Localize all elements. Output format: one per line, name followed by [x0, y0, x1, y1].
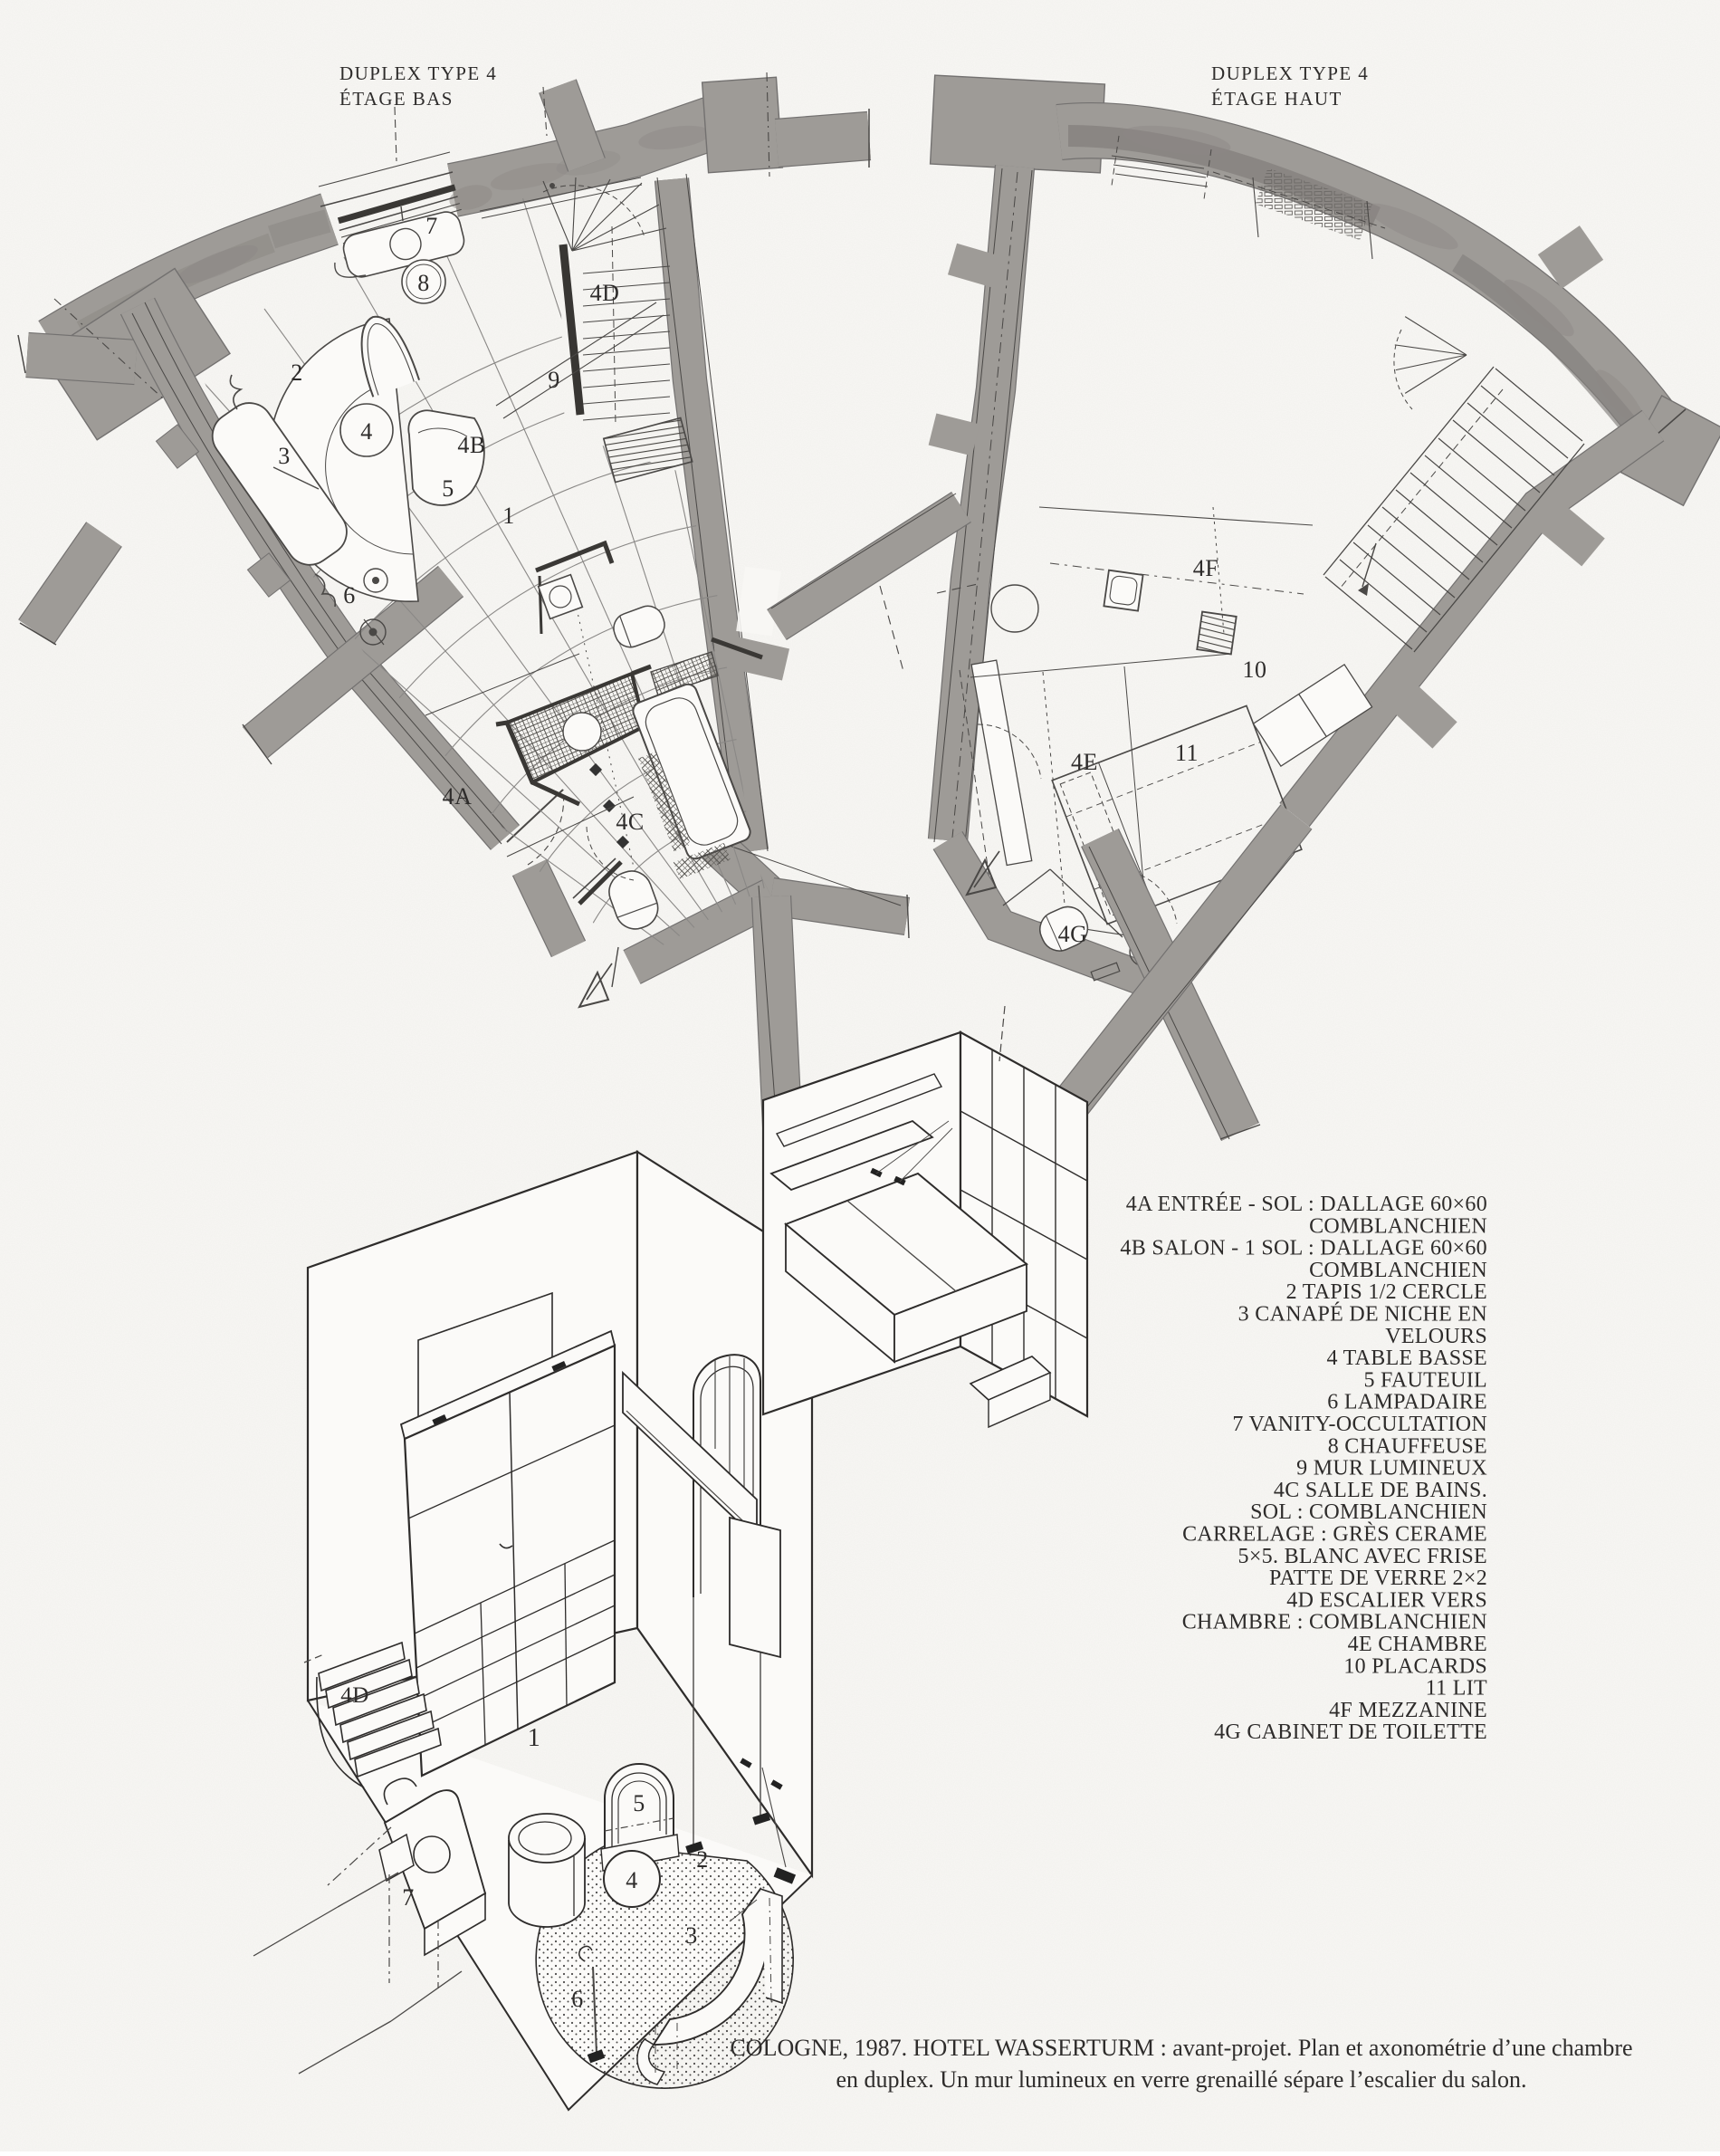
- svg-text:4D: 4D: [590, 280, 620, 306]
- svg-text:5: 5: [633, 1790, 645, 1816]
- svg-text:4: 4: [360, 418, 373, 445]
- svg-text:4F: 4F: [1193, 555, 1218, 581]
- svg-text:7: 7: [425, 213, 438, 239]
- svg-text:4 TABLE BASSE: 4 TABLE BASSE: [1326, 1346, 1487, 1370]
- svg-text:SOL : COMBLANCHIEN: SOL : COMBLANCHIEN: [1250, 1500, 1487, 1524]
- svg-text:2 TAPIS 1/2 CERCLE: 2 TAPIS 1/2 CERCLE: [1286, 1280, 1487, 1304]
- svg-text:DUPLEX TYPE 4: DUPLEX TYPE 4: [339, 62, 497, 84]
- svg-text:11: 11: [1175, 740, 1199, 766]
- svg-text:6 LAMPADAIRE: 6 LAMPADAIRE: [1327, 1391, 1487, 1414]
- svg-text:9: 9: [548, 367, 560, 393]
- svg-text:4F MEZZANINE: 4F MEZZANINE: [1329, 1699, 1487, 1722]
- svg-text:ÉTAGE HAUT: ÉTAGE HAUT: [1211, 88, 1343, 110]
- svg-text:2: 2: [696, 1846, 709, 1873]
- svg-text:4D ESCALIER VERS: 4D ESCALIER VERS: [1286, 1588, 1487, 1612]
- svg-text:4E: 4E: [1071, 749, 1098, 775]
- svg-text:COMBLANCHIEN: COMBLANCHIEN: [1309, 1214, 1487, 1238]
- svg-text:4: 4: [626, 1867, 638, 1893]
- svg-text:8: 8: [417, 270, 430, 296]
- svg-text:4E CHAMBRE: 4E CHAMBRE: [1348, 1633, 1487, 1656]
- svg-text:4C: 4C: [616, 809, 644, 835]
- svg-text:1: 1: [528, 1724, 541, 1752]
- svg-text:4G: 4G: [1058, 921, 1088, 947]
- svg-text:6: 6: [571, 1986, 584, 2012]
- svg-text:CARRELAGE : GRÈS CERAME: CARRELAGE : GRÈS CERAME: [1182, 1523, 1487, 1547]
- svg-text:COLOGNE, 1987. HOTEL WASSERTUR: COLOGNE, 1987. HOTEL WASSERTURM : avant-…: [730, 2035, 1632, 2061]
- svg-text:3: 3: [685, 1922, 698, 1949]
- svg-text:3: 3: [278, 443, 291, 469]
- svg-text:ÉTAGE BAS: ÉTAGE BAS: [339, 88, 454, 110]
- svg-text:4A ENTRÉE - SOL : DALLAGE 60×6: 4A ENTRÉE - SOL : DALLAGE 60×60: [1126, 1193, 1487, 1216]
- svg-text:4C SALLE DE BAINS.: 4C SALLE DE BAINS.: [1274, 1479, 1487, 1502]
- svg-text:2: 2: [291, 359, 303, 386]
- svg-text:1: 1: [502, 503, 515, 529]
- svg-text:9 MUR LUMINEUX: 9 MUR LUMINEUX: [1296, 1457, 1487, 1480]
- svg-text:4D: 4D: [340, 1683, 369, 1708]
- svg-text:8 CHAUFFEUSE: 8 CHAUFFEUSE: [1328, 1434, 1487, 1458]
- svg-text:5: 5: [442, 475, 454, 502]
- svg-text:4G CABINET DE TOILETTE: 4G CABINET DE TOILETTE: [1214, 1720, 1487, 1744]
- svg-text:3 CANAPÉ DE NICHE EN: 3 CANAPÉ DE NICHE EN: [1238, 1303, 1487, 1327]
- svg-text:10 PLACARDS: 10 PLACARDS: [1343, 1654, 1487, 1678]
- svg-text:5×5. BLANC AVEC FRISE: 5×5. BLANC AVEC FRISE: [1238, 1545, 1487, 1568]
- svg-text:VELOURS: VELOURS: [1385, 1325, 1487, 1348]
- svg-text:10: 10: [1243, 656, 1267, 683]
- svg-text:7 VANITY-OCCULTATION: 7 VANITY-OCCULTATION: [1232, 1413, 1487, 1436]
- svg-text:6: 6: [343, 582, 356, 608]
- svg-text:CHAMBRE : COMBLANCHIEN: CHAMBRE : COMBLANCHIEN: [1182, 1611, 1487, 1634]
- svg-text:4B: 4B: [457, 432, 485, 458]
- svg-text:PATTE DE VERRE 2×2: PATTE DE VERRE 2×2: [1269, 1567, 1487, 1590]
- svg-text:4B SALON - 1 SOL : DALLAGE 60×: 4B SALON - 1 SOL : DALLAGE 60×60: [1120, 1237, 1487, 1260]
- svg-text:4A: 4A: [443, 783, 473, 810]
- svg-text:5 FAUTEUIL: 5 FAUTEUIL: [1363, 1368, 1487, 1392]
- svg-text:DUPLEX TYPE 4: DUPLEX TYPE 4: [1211, 62, 1369, 84]
- svg-text:7: 7: [402, 1884, 415, 1911]
- svg-text:en duplex. Un mur lumineux en: en duplex. Un mur lumineux en verre gren…: [836, 2066, 1526, 2093]
- svg-text:COMBLANCHIEN: COMBLANCHIEN: [1309, 1259, 1487, 1282]
- svg-text:11 LIT: 11 LIT: [1426, 1677, 1487, 1701]
